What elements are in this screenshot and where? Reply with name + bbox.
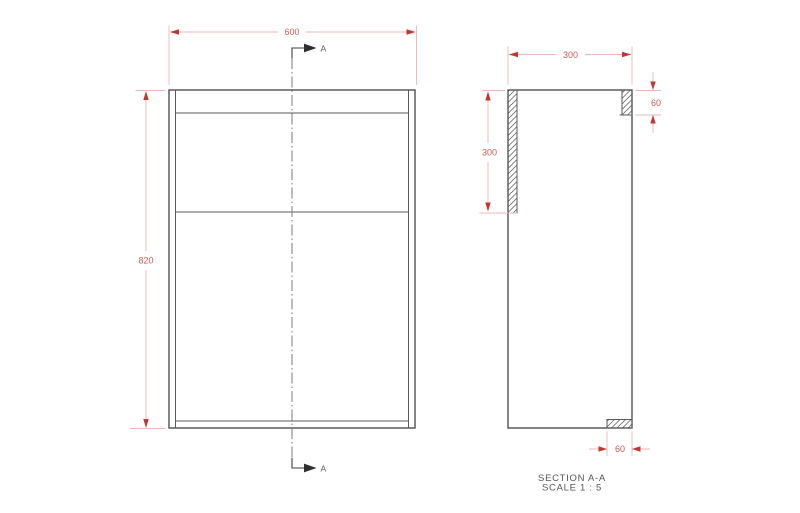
dim-bottom-rail-value: 60	[615, 444, 625, 454]
section-label-bottom: A	[321, 464, 327, 474]
section-cut-line: A A	[292, 44, 327, 474]
section-view	[508, 90, 632, 428]
section-view-title: SECTION A-A SCALE 1 : 5	[538, 473, 606, 494]
dim-arrow-icon	[485, 203, 490, 212]
section-marker-bottom-elbow	[292, 458, 304, 468]
dimension-section-depth: 300	[508, 47, 632, 86]
section-scale-text: SCALE 1 : 5	[542, 483, 602, 494]
dim-front-width-value: 600	[284, 27, 299, 37]
dim-arrow-icon	[650, 115, 655, 124]
dim-top-rail-value: 60	[651, 98, 661, 108]
drawing-sheet: A A 600 820 300	[0, 0, 800, 513]
dim-arrow-icon	[170, 29, 179, 34]
dim-section-depth-value: 300	[563, 50, 578, 60]
dim-arrow-icon	[599, 446, 608, 451]
dim-arrow-icon	[485, 92, 490, 101]
dim-arrow-icon	[650, 82, 655, 91]
section-label-top: A	[321, 44, 327, 54]
section-arrow-top-icon	[304, 44, 317, 53]
dim-front-height-value: 820	[138, 256, 153, 266]
dim-arrow-icon	[143, 91, 148, 100]
section-view-outline	[508, 90, 632, 428]
dimension-front-width: 600	[169, 26, 417, 86]
dim-arrow-icon	[632, 446, 641, 451]
dimension-top-rail: 60	[636, 72, 662, 133]
dimension-front-height: 820	[130, 91, 166, 429]
section-arrow-bottom-icon	[304, 464, 317, 473]
dimension-bottom-rail: 60	[589, 432, 650, 457]
bottom-rail-section-hatch	[607, 420, 632, 429]
dim-arrow-icon	[509, 52, 518, 57]
technical-drawing: A A 600 820 300	[0, 0, 800, 513]
dim-arrow-icon	[143, 419, 148, 428]
dim-arrow-icon	[622, 52, 631, 57]
top-rail-section-hatch	[622, 90, 632, 115]
back-panel-section-hatch	[508, 90, 517, 213]
section-marker-top-elbow	[292, 48, 304, 58]
dim-back-panel-value: 300	[482, 148, 497, 158]
dim-arrow-icon	[407, 29, 416, 34]
